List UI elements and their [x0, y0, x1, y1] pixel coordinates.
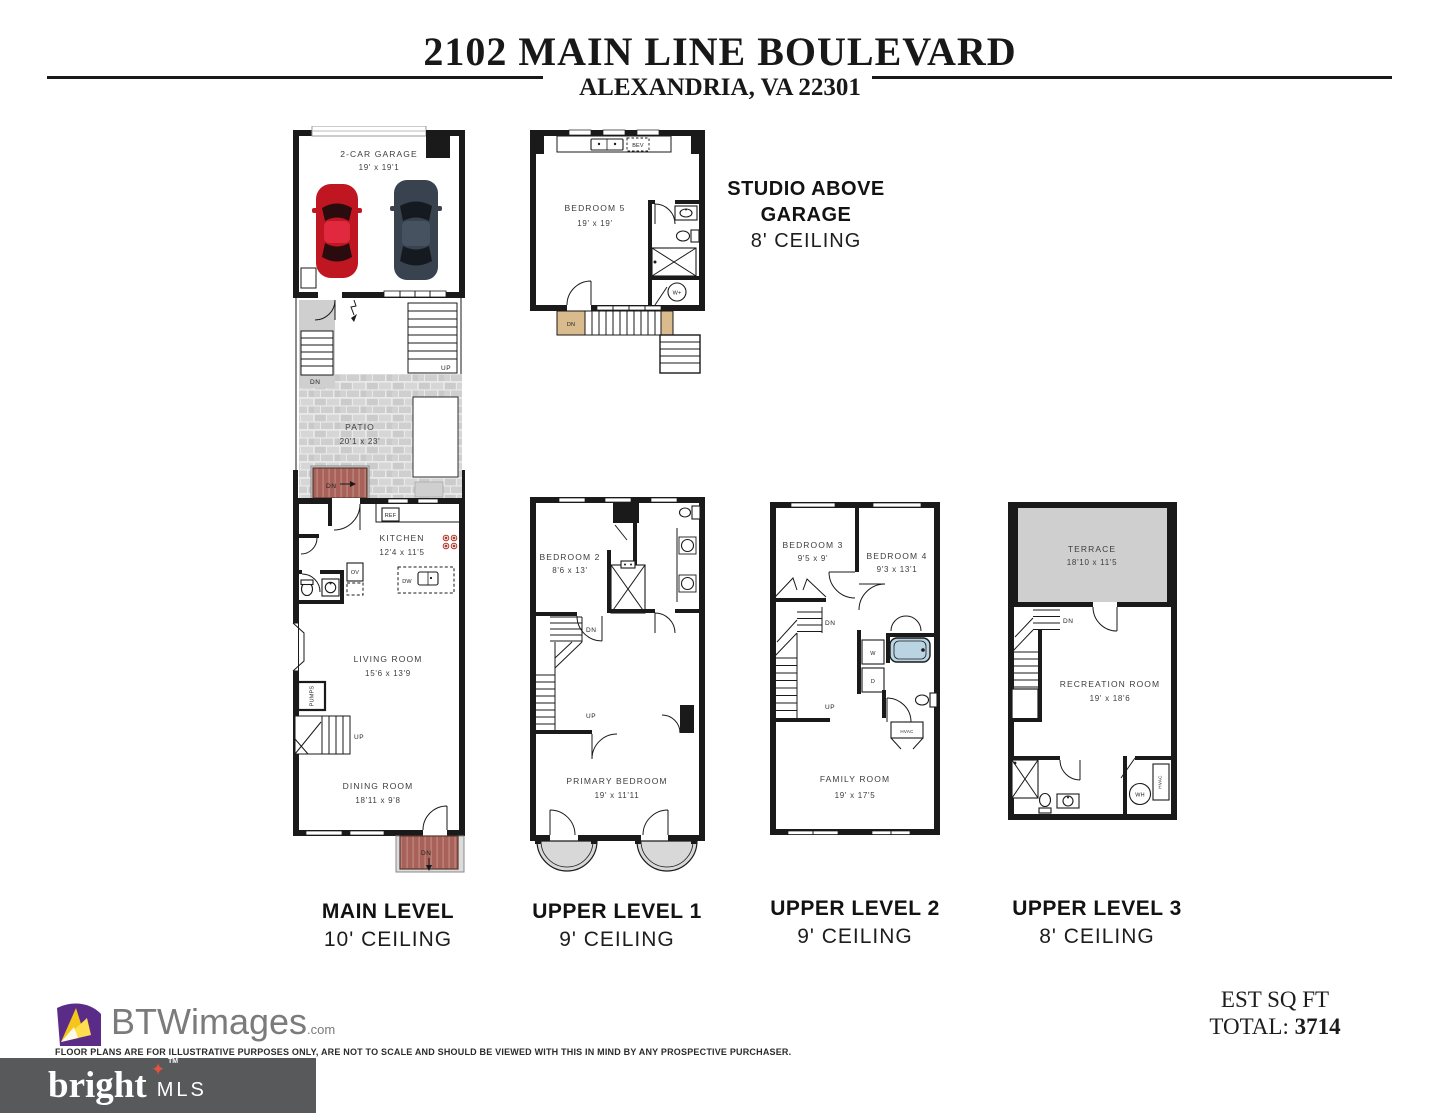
svg-text:DN: DN	[310, 379, 320, 386]
svg-text:W: W	[870, 651, 876, 657]
sink	[682, 540, 694, 552]
stairs-patio-up: UP	[408, 303, 457, 373]
toilet	[916, 695, 929, 705]
mls-tm: TM	[168, 1058, 178, 1065]
svg-text:DN: DN	[586, 627, 596, 634]
primary-bedroom-label: PRIMARY BEDROOM	[566, 776, 667, 786]
terrace-dims: 18'10 x 11'5	[1067, 558, 1117, 567]
floor-plan-upper-level-3: TERRACE 18'10 x 11'5 DN RECREATION ROOM …	[1003, 490, 1188, 825]
floor-plan-studio: BEV BEDROOM 5 19' x 19' W+ D	[525, 126, 710, 376]
toilet	[680, 508, 691, 517]
btw-logo-icon	[55, 1000, 103, 1048]
svg-text:HVAC: HVAC	[1158, 775, 1163, 789]
entry-arrow	[351, 300, 357, 322]
toilet	[677, 231, 690, 241]
bedroom3-dims: 9'5 x 9'	[798, 554, 828, 563]
kitchen-island: DW	[398, 567, 454, 593]
dining-room-label: DINING ROOM	[343, 781, 414, 791]
svg-text:DN: DN	[567, 322, 575, 328]
svg-text:HVAC: HVAC	[900, 729, 914, 734]
label-main-level: MAIN LEVEL 10' CEILING	[288, 900, 488, 952]
sink	[682, 578, 694, 590]
wet-bar-counter: BEV	[557, 136, 671, 152]
label-upper-level-2: UPPER LEVEL 2 9' CEILING	[755, 897, 955, 949]
car-red	[312, 184, 362, 278]
btw-logo: BTWimages.com	[55, 1000, 335, 1052]
svg-text:W+: W+	[673, 291, 682, 297]
svg-text:UP: UP	[825, 704, 835, 711]
studio-stair-landing: DN	[557, 311, 673, 335]
disclaimer-text: FLOOR PLANS ARE FOR ILLUSTRATIVE PURPOSE…	[55, 1047, 791, 1057]
terrace: TERRACE 18'10 x 11'5	[1008, 502, 1177, 607]
main-floor: REF KITCHEN 12'4 x 11'5 OV DW	[293, 498, 465, 872]
patio-label: PATIO	[345, 422, 375, 432]
floor-plan-upper-level-2: BEDROOM 3 9'5 x 9' BEDROOM 4 9'3 x 13'1 …	[763, 490, 948, 845]
garage-label: 2-CAR GARAGE	[340, 149, 417, 159]
living-room-label: LIVING ROOM	[354, 654, 423, 664]
deck-patio: DN	[311, 466, 369, 500]
dishwasher-label: DW	[402, 579, 412, 585]
total-value: 3714	[1295, 1014, 1341, 1039]
bedroom2-dims: 8'6 x 13'	[552, 566, 588, 575]
chimney	[680, 705, 694, 733]
label-upper-level-1: UPPER LEVEL 1 9' CEILING	[517, 900, 717, 952]
svg-text:DN: DN	[421, 850, 431, 857]
pumps-label: PUMPS	[310, 686, 316, 707]
floor-plan-sheet: 2102 MAIN LINE BOULEVARD ALEXANDRIA, VA …	[0, 0, 1440, 1113]
balcony-left	[535, 835, 597, 871]
fridge-label: REF	[385, 513, 397, 519]
garage: 2-CAR GARAGE 19' x 19'1	[293, 126, 465, 298]
oven-label: OV	[351, 570, 359, 576]
family-room-label: FAMILY ROOM	[820, 774, 890, 784]
patio-dims: 20'1 x 23'	[340, 437, 381, 446]
total-label: TOTAL:	[1209, 1014, 1289, 1039]
bedroom4-label: BEDROOM 4	[867, 551, 928, 561]
dining-room-dims: 18'11 x 9'8	[355, 796, 400, 805]
svg-text:WH: WH	[1135, 793, 1145, 799]
svg-text:UP: UP	[354, 734, 364, 741]
est-sq-ft-block: EST SQ FT TOTAL: 3714	[1160, 986, 1390, 1040]
family-room-dims: 19' x 17'5	[835, 791, 876, 800]
label-upper-level-3: UPPER LEVEL 3 8' CEILING	[997, 897, 1197, 949]
svg-text:UP: UP	[586, 713, 596, 720]
bright-mls-logo: bright✦TM MLS	[0, 1058, 316, 1113]
beverage-label: BEV	[632, 143, 644, 149]
page-title: 2102 MAIN LINE BOULEVARD	[0, 28, 1440, 75]
bedroom2-label: BEDROOM 2	[540, 552, 601, 562]
balcony-right	[635, 835, 697, 871]
studio-lower-stairs	[660, 335, 700, 373]
star-icon: ✦	[151, 1060, 165, 1080]
studio-callout-line2: GARAGE	[706, 202, 906, 228]
toilet	[1040, 794, 1051, 807]
car-dark	[390, 180, 442, 280]
svg-text:DN: DN	[326, 483, 336, 490]
svg-text:DN: DN	[1063, 618, 1073, 625]
svg-text:DN: DN	[825, 620, 835, 627]
pumps-closet: PUMPS	[298, 682, 325, 710]
bedroom5-dims: 19' x 19'	[577, 219, 613, 228]
recreation-room-dims: 19' x 18'6	[1090, 694, 1131, 703]
primary-bedroom-dims: 19' x 11'11	[595, 791, 640, 800]
est-label: EST SQ FT	[1160, 986, 1390, 1013]
living-room-dims: 15'6 x 13'9	[365, 669, 411, 678]
recreation-room-label: RECREATION ROOM	[1060, 679, 1160, 689]
floor-plan-main-level: 2-CAR GARAGE 19' x 19'1	[288, 126, 468, 878]
svg-text:UP: UP	[441, 365, 451, 372]
kitchen-label: KITCHEN	[379, 533, 424, 543]
bedroom4-dims: 9'3 x 13'1	[877, 565, 918, 574]
terrace-label: TERRACE	[1068, 544, 1116, 554]
btw-logo-text: BTWimages	[111, 1001, 307, 1042]
studio-callout: STUDIO ABOVE GARAGE 8' CEILING	[706, 176, 906, 254]
deck-rear: DN	[396, 836, 464, 872]
page-subtitle: ALEXANDRIA, VA 22301	[0, 74, 1440, 102]
bedroom5-label: BEDROOM 5	[565, 203, 626, 213]
patio-area: DN UP PATIO 20'1 x 23' DN	[293, 298, 465, 500]
mls-brand-text: bright	[48, 1065, 147, 1106]
studio-callout-line1: STUDIO ABOVE	[706, 176, 906, 202]
studio-callout-ceiling: 8' CEILING	[706, 228, 906, 254]
mls-suffix-text: MLS	[157, 1079, 207, 1102]
bedroom3-label: BEDROOM 3	[783, 540, 844, 550]
btw-logo-suffix: .com	[307, 1022, 335, 1037]
floor-plan-upper-level-1: BEDROOM 2 8'6 x 13'	[525, 490, 710, 880]
svg-text:D: D	[871, 679, 875, 685]
garage-dims: 19' x 19'1	[359, 163, 400, 172]
kitchen-dims: 12'4 x 11'5	[379, 548, 424, 557]
